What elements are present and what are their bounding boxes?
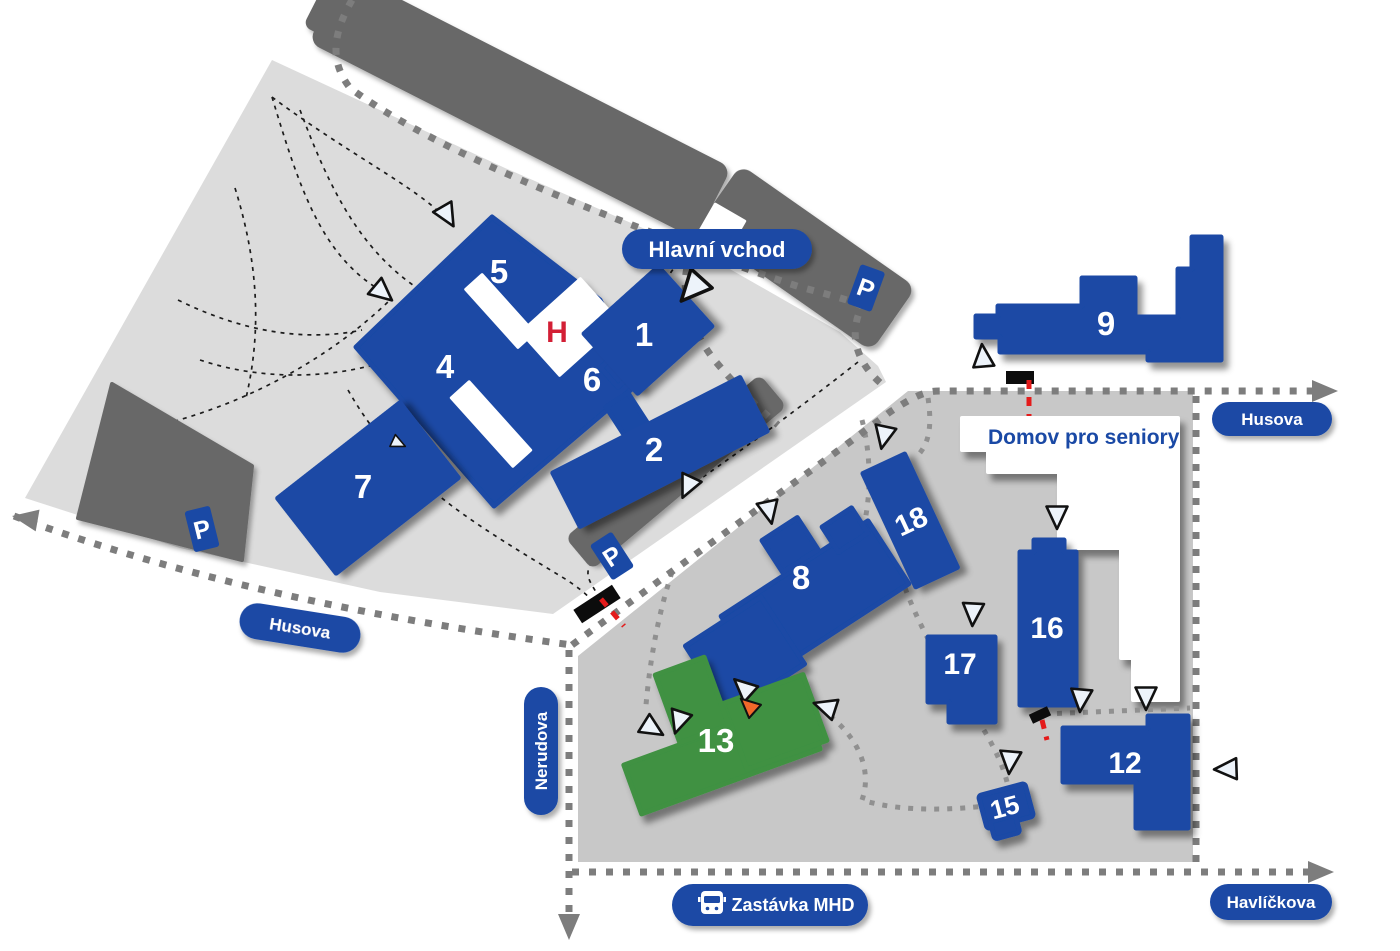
main-entrance-label: Hlavní vchod [649, 237, 786, 262]
building-8-number: 8 [792, 559, 810, 596]
entrance-triangle-icon [1214, 758, 1237, 780]
building-3-number: 3 [498, 424, 516, 461]
seniors-home-label: Domov pro seniory [988, 426, 1180, 449]
building-2-number: 2 [645, 431, 663, 468]
label-nerudova: Nerudova [524, 687, 558, 815]
building-4-number: 4 [436, 348, 455, 385]
entrance-triangle-icon [971, 343, 994, 367]
street-label: Nerudova [532, 711, 551, 790]
road-arrow-northeast [1312, 380, 1338, 402]
building-9-number: 9 [1097, 305, 1115, 342]
road-arrow-south [558, 914, 580, 940]
building-6-number: 6 [583, 361, 601, 398]
label-husova-north: Husova [1212, 402, 1332, 436]
building-16-number: 16 [1030, 612, 1063, 645]
helipad-letter: H [546, 316, 568, 349]
campus-map-svg: P [0, 0, 1400, 951]
hospital-campus-map: P [0, 0, 1400, 951]
building-17-number: 17 [943, 648, 976, 681]
building-1-number: 1 [635, 316, 653, 353]
building-7-number: 7 [354, 468, 372, 505]
street-label: Havlíčkova [1227, 893, 1316, 912]
building-12-number: 12 [1108, 747, 1141, 780]
building-5-number: 5 [490, 253, 508, 290]
building-13-number: 13 [698, 722, 735, 759]
street-label: Husova [1241, 410, 1303, 429]
label-bus-stop: Zastávka MHD [672, 884, 868, 926]
bus-stop-label: Zastávka MHD [731, 895, 854, 915]
label-main-entrance: Hlavní vchod [622, 229, 812, 269]
bus-icon [698, 891, 726, 914]
label-havlickova: Havlíčkova [1210, 884, 1332, 920]
road-arrow-southeast [1308, 861, 1334, 883]
